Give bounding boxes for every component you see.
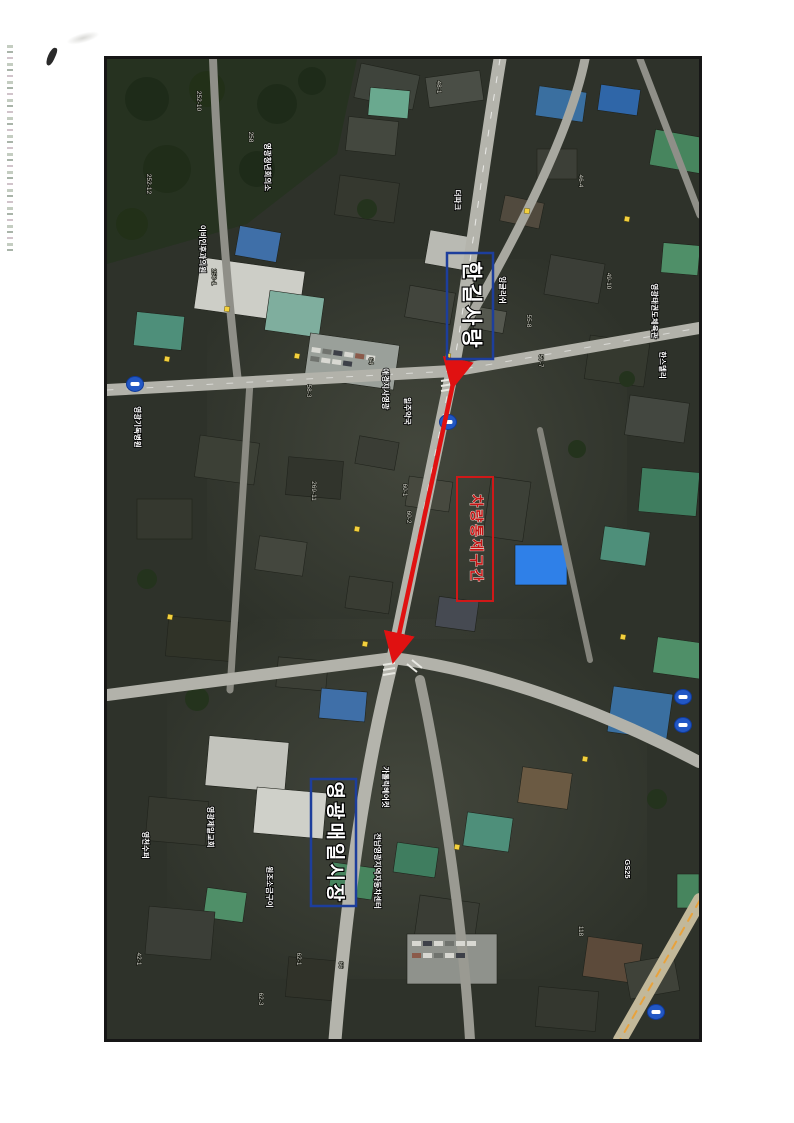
map-label: 영광청년회의소 (263, 143, 273, 191)
parcel-label: 62-1 (295, 952, 302, 965)
map-label: 영광제일교회 (206, 806, 216, 847)
poi-marker-icon (167, 614, 173, 620)
pen-mark (44, 46, 58, 66)
parcel-label: 57-7 (537, 354, 544, 367)
poi-marker-icon (354, 526, 360, 532)
parcel-label: 269-11 (310, 481, 317, 501)
route-badge-icon (675, 718, 692, 733)
annotation-market-label: 영광매일시장 (324, 782, 346, 905)
parcel-label: 66 (337, 961, 344, 969)
scan-smudge (65, 29, 100, 47)
parcel-label: 55-8 (525, 314, 532, 327)
poi-marker-icon (362, 641, 368, 647)
poi-marker-icon (454, 844, 460, 850)
poi-marker-icon (524, 208, 530, 214)
poi-marker-icon (582, 756, 588, 762)
route-badge-icon (127, 377, 144, 392)
poi-marker-icon (294, 353, 300, 359)
map-label: 영천수퍼 (141, 831, 151, 859)
map-frame: 252-10252-12258250-148-149-1046-458-357-… (104, 56, 702, 1042)
map-label: 일주약국 (403, 397, 413, 425)
parcel-label: 48-1 (435, 80, 442, 93)
map-label: 더파크 (453, 190, 463, 211)
poi-marker-icon (164, 356, 170, 362)
parcel-label: 64 (367, 357, 374, 365)
annotation-restricted-label: 차량통제구간 (468, 494, 484, 583)
map-label: 한스델리 (658, 351, 668, 379)
scanned-page: 252-10252-12258250-148-149-1046-458-357-… (0, 0, 794, 1123)
route-badge-icon (648, 1005, 665, 1020)
map-label: GS25 (623, 859, 632, 878)
map-label: 영광태권도체육관 (650, 283, 660, 338)
parcel-label: 252-12 (145, 174, 152, 195)
poi-marker-icon (624, 216, 630, 222)
scan-artifact-strip (7, 45, 13, 255)
parcel-label: 252-10 (195, 91, 202, 112)
parcel-label: 60-2 (405, 510, 412, 523)
poi-marker-icon (620, 634, 626, 640)
parcel-label: 46-4 (577, 174, 584, 187)
parcel-label: 49-10 (605, 273, 612, 290)
map-label: 전남영광지역자동차센터 (373, 833, 383, 909)
annotation-hangil-label: 한길사랑 (459, 261, 482, 350)
map-label: 가톨릭헤어컷 (381, 766, 391, 807)
poi-marker-icon (224, 306, 230, 312)
map-label: 영광기독병원 (133, 406, 143, 447)
blue-tarp (515, 545, 567, 585)
satellite-map: 252-10252-12258250-148-149-1046-458-357-… (107, 59, 699, 1039)
map-label: 애경지사영광 (381, 368, 391, 409)
route-badge-icon (675, 690, 692, 705)
map-label: 잉글리쉬 (498, 276, 508, 304)
map-label: 원조소금구이 (265, 866, 275, 907)
parcel-label: 250-1 (210, 269, 217, 286)
parcel-label: 58-3 (305, 384, 312, 397)
parcel-label: 42-1 (135, 952, 142, 965)
parcel-label: 258 (247, 132, 254, 143)
map-label: 이비인후과의원 (198, 225, 208, 273)
parcel-label: 60-1 (401, 483, 408, 496)
parcel-label: 118 (577, 926, 584, 937)
parcel-label: 62-3 (257, 992, 264, 1005)
